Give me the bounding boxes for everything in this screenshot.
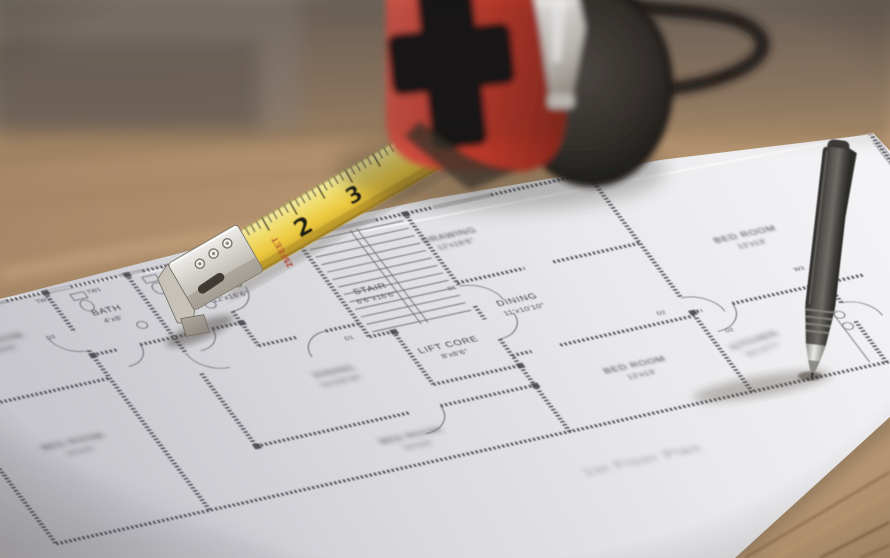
- pen-tip-contact-shadow: [798, 372, 822, 381]
- photo-canvas: LIVING 12'x16'6" STAIR 6'6"x16'6" DINING…: [0, 0, 890, 558]
- belt-clip-end: [548, 94, 574, 108]
- tape-measure-body: [381, 0, 670, 190]
- top-left-dark-patch: [0, 40, 260, 130]
- grip-cross-horizontal: [386, 22, 516, 97]
